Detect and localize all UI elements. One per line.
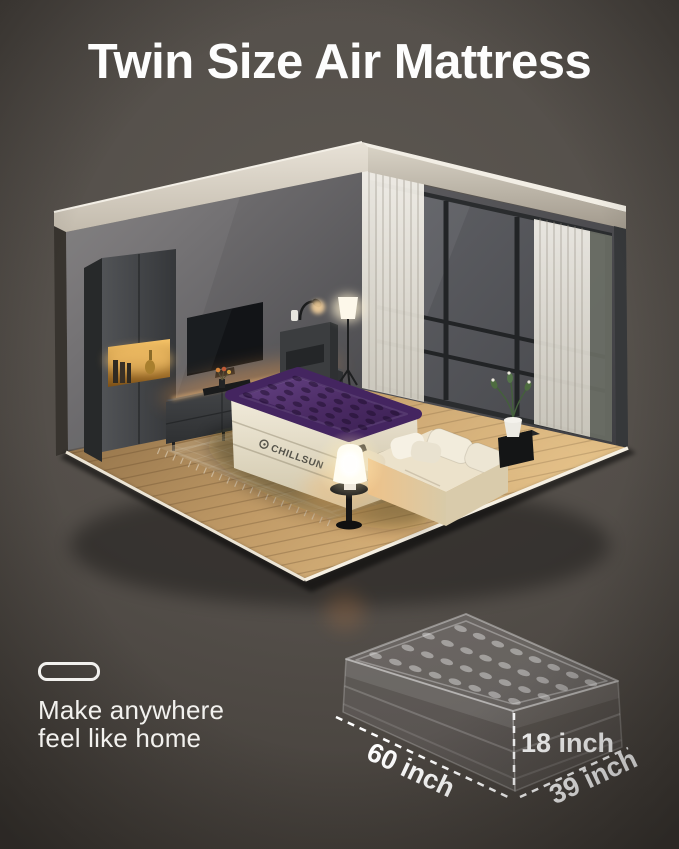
tagline: Make anywhere feel like home (38, 662, 224, 752)
product-title: Twin Size Air Mattress (0, 34, 679, 90)
tagline-line-1: Make anywhere (38, 696, 224, 724)
tagline-line-2: feel like home (38, 724, 224, 752)
product-image: CHILLSUN (0, 0, 679, 849)
air-mattress-icon (38, 662, 100, 681)
